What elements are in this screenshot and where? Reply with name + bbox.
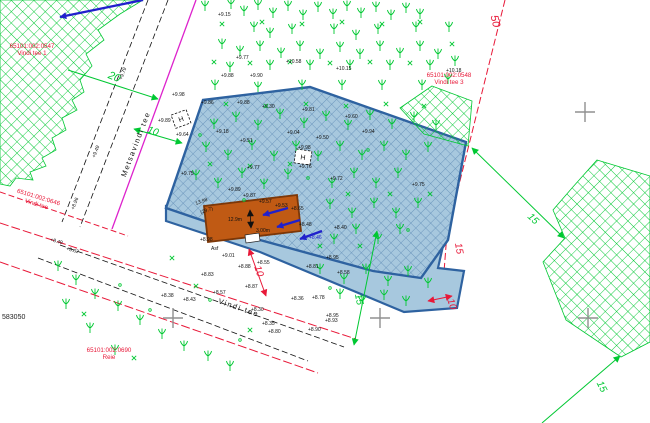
elevation-label: +8.46 <box>309 235 322 241</box>
tree-icon <box>73 275 80 286</box>
elevation-label: +8.81 <box>306 264 319 270</box>
elevation-label: +9.51 <box>240 138 253 144</box>
elevation-label: +9.98 <box>298 145 311 151</box>
elevation-label: +8.95 <box>326 255 339 261</box>
tree-icon <box>377 41 384 52</box>
tree-icon <box>315 2 322 13</box>
tree-icon <box>330 9 337 20</box>
elevation-label: +9.01 <box>222 253 235 259</box>
tree-icon <box>339 80 346 91</box>
elevation-label: +8.62 <box>65 246 79 255</box>
shrub-x-icon <box>170 256 174 260</box>
tree-icon <box>397 48 404 59</box>
tree-icon <box>181 341 188 352</box>
tree-icon <box>212 80 219 91</box>
tree-icon <box>92 289 99 300</box>
elevation-label: +8.38 <box>161 293 174 299</box>
elevation-label: +9.60 <box>345 114 358 120</box>
elevation-label: +9.04 <box>287 130 300 136</box>
grid-coordinate-label: 583050 <box>2 314 25 321</box>
tree-icon <box>202 1 209 12</box>
elevation-label: +8.98 <box>200 237 213 243</box>
shrub-x-icon <box>384 102 388 106</box>
elevation-label: +9.75 <box>181 171 194 177</box>
tree-icon <box>379 80 386 91</box>
tree-icon <box>419 80 426 91</box>
shrub-x-icon <box>418 20 422 24</box>
elevation-label: +8.90 <box>308 327 321 333</box>
elevation-label: +9.18 <box>216 129 229 135</box>
tree-icon <box>278 48 285 59</box>
shrub-x-icon <box>248 328 252 332</box>
tree-icon <box>417 9 424 20</box>
forest-hatch-area-northwest <box>0 0 143 186</box>
elevation-label: +9.15 <box>218 12 231 18</box>
forest-hatch-area-southeast <box>543 160 650 357</box>
point-dot-icon <box>149 309 152 312</box>
elevation-label: +9.98 <box>172 92 185 98</box>
elevation-label: +10.58 <box>286 59 302 65</box>
tree-icon <box>241 6 248 17</box>
elevation-label: +8.88 <box>238 264 251 270</box>
elevation-label: +10.15 <box>336 66 352 72</box>
elevation-label: +8.65 <box>291 206 304 212</box>
tree-icon <box>205 351 212 362</box>
shrub-x-icon <box>328 61 332 65</box>
tree-icon <box>267 28 274 39</box>
elevation-label: +9.81 <box>302 107 315 113</box>
shrub-x-icon <box>340 20 344 24</box>
shrub-x-icon <box>450 42 454 46</box>
tree-icon <box>331 24 338 35</box>
elevation-label: +8.57 <box>213 290 226 296</box>
building-label: 12.9m <box>228 217 242 223</box>
elevation-label: +8.96 <box>70 197 80 211</box>
elevation-label: Asf <box>211 246 219 252</box>
elevation-label: +9.75 <box>412 182 425 188</box>
tree-icon <box>387 60 394 71</box>
elevation-label: +8.78 <box>312 295 325 301</box>
tree-icon <box>417 41 424 52</box>
elevation-label: +8.80 <box>268 329 281 335</box>
elevation-label: +9.53 <box>275 203 288 209</box>
tree-icon <box>257 41 264 52</box>
elevation-label: +9.94 <box>362 129 375 135</box>
tree-icon <box>251 22 258 33</box>
elevation-label: +9.76 <box>299 164 312 170</box>
tree-icon <box>446 22 453 33</box>
point-dot-icon <box>209 299 212 302</box>
tree-icon <box>87 323 94 334</box>
shrub-x-icon <box>300 22 304 26</box>
elevation-label: +9.87 <box>243 193 256 199</box>
tree-icon <box>337 42 344 53</box>
tree-icon <box>228 0 235 9</box>
tree-icon <box>358 8 365 19</box>
elevation-label: +9.86 <box>201 100 214 106</box>
shrub-x-icon <box>132 356 136 360</box>
shrub-x-icon <box>260 20 264 24</box>
elevation-label: +9.72 <box>330 176 343 182</box>
dimension-label: 15 <box>525 211 541 227</box>
elevation-label: +9.50 <box>316 135 329 141</box>
tree-icon <box>344 1 351 12</box>
elevation-label: +9.90 <box>250 73 263 79</box>
tree-icon <box>270 8 277 19</box>
elevation-label: +8.35 <box>262 321 275 327</box>
tree-icon <box>317 49 324 60</box>
tree-icon <box>159 329 166 340</box>
shrub-x-icon <box>212 60 216 64</box>
elevation-label: +9.89 <box>158 118 171 124</box>
elevation-label: +9.77 <box>236 55 249 61</box>
dimension-label: 15 <box>594 379 609 394</box>
dimension-label: 10 <box>146 125 161 139</box>
tree-icon <box>297 41 304 52</box>
elevation-label: +9.30 <box>262 104 275 110</box>
point-dot-icon <box>119 284 122 287</box>
elevation-label: +8.83 <box>201 272 214 278</box>
h-marker: H <box>171 110 191 129</box>
tree-icon <box>255 82 262 93</box>
elevation-label: +8.48 <box>299 222 312 228</box>
elevation-label: +8.49 <box>49 237 63 246</box>
elevation-label: +8.93 <box>325 318 338 324</box>
shrub-x-icon <box>408 61 412 65</box>
tree-icon <box>285 1 292 12</box>
elevation-label: +8.40 <box>334 225 347 231</box>
elevation-label: +9.88 <box>237 100 250 106</box>
elevation-label: +9.64 <box>176 132 189 138</box>
grid-cross-icon <box>370 308 390 328</box>
dimension-line <box>472 148 564 238</box>
elevation-label: +8.43 <box>183 297 196 303</box>
elevation-label: +9.57 <box>259 199 272 205</box>
h-marker: H <box>294 149 312 165</box>
tree-icon <box>227 62 234 73</box>
elevation-label: +8.58 <box>337 270 350 276</box>
tree-icon <box>55 261 62 272</box>
tree-icon <box>388 10 395 21</box>
point-dot-icon <box>329 287 332 290</box>
tree-icon <box>255 0 262 10</box>
tree-icon <box>403 3 410 14</box>
road-boundary-line <box>0 262 318 373</box>
tree-icon <box>289 24 296 35</box>
point-dot-icon <box>239 339 242 342</box>
grid-cross-icon <box>163 308 183 328</box>
shrub-x-icon <box>82 312 86 316</box>
shrub-x-icon <box>248 61 252 65</box>
grid-cross-icon <box>575 102 595 122</box>
cadastral-label: 65101:002:0548Vindi tee 3 <box>427 72 472 86</box>
svg-text:H: H <box>300 154 306 162</box>
tree-icon <box>452 56 459 67</box>
tree-icon <box>63 299 70 310</box>
tree-icon <box>435 49 442 60</box>
building-label: 3.00m <box>256 228 270 234</box>
building-annex <box>245 233 260 243</box>
tree-icon <box>353 30 360 41</box>
elevation-label: +9.77 <box>247 165 260 171</box>
dimension-label: 10 <box>251 264 265 278</box>
road-name-label: Vindi tee <box>217 296 260 318</box>
site-plan-drawing: 12.9m3.00m201050151010151515HH583050+9.1… <box>0 0 650 423</box>
elevation-label: +8.55 <box>257 260 270 266</box>
cadastral-label: 65101:002:0690Reie <box>87 347 132 361</box>
tree-icon <box>307 60 314 71</box>
dimension-label: 50 <box>488 14 503 30</box>
elevation-label: +8.87 <box>245 284 258 290</box>
tree-icon <box>219 39 226 50</box>
tree-icon <box>227 361 234 372</box>
road-name-label: Metsavindi tee <box>119 110 152 178</box>
dimension-label: 15 <box>452 242 465 255</box>
tree-icon <box>267 60 274 71</box>
site-plan-canvas: 12.9m3.00m201050151010151515HH583050+9.1… <box>0 0 650 423</box>
tree-icon <box>337 289 344 300</box>
shrub-x-icon <box>368 60 372 64</box>
elevation-label: +8.36 <box>291 296 304 302</box>
elevation-label: +9.79 <box>118 67 128 81</box>
tree-icon <box>427 60 434 71</box>
tree-icon <box>357 49 364 60</box>
elevation-label: +9.89 <box>228 187 241 193</box>
tree-icon <box>373 2 380 13</box>
elevation-label: +9.49 <box>91 145 101 159</box>
tree-icon <box>137 315 144 326</box>
shrub-x-icon <box>380 22 384 26</box>
elevation-label: +9.88 <box>221 73 234 79</box>
shrub-x-icon <box>220 22 224 26</box>
tree-icon <box>300 10 307 21</box>
